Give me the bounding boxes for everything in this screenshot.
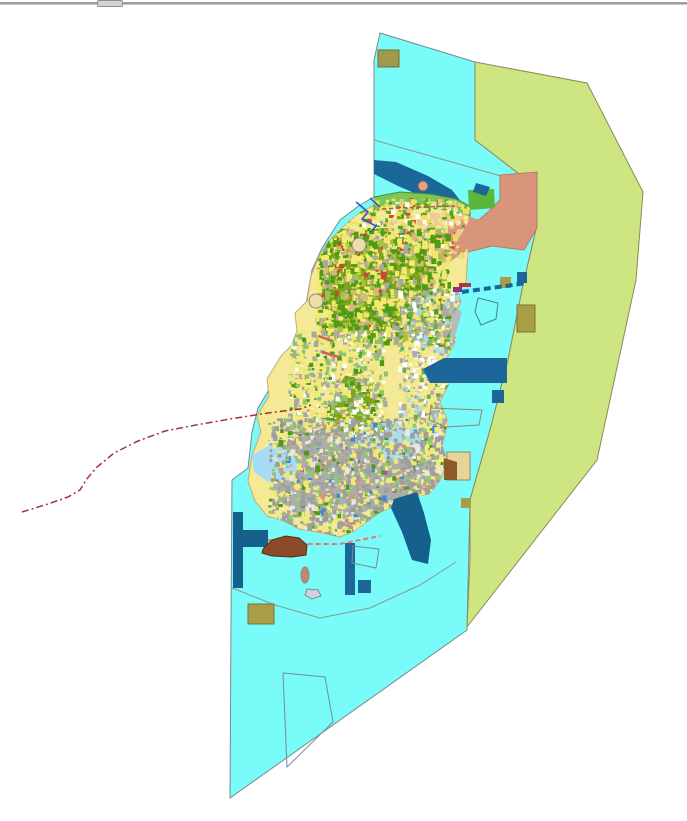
blue-square-east: [492, 390, 504, 403]
landmark-circle-north: [352, 238, 366, 252]
khaki-area-sw: [248, 604, 274, 624]
blue-bar-south: [345, 543, 355, 595]
blue-square-ne: [517, 272, 527, 283]
port-symbol-purple: [453, 287, 462, 292]
port-symbol-red: [459, 283, 471, 287]
blue-square-south: [358, 580, 371, 593]
map-page: [0, 0, 687, 821]
islet-salmon: [301, 567, 309, 583]
map-canvas: [0, 0, 687, 821]
landmark-circle-west: [309, 294, 323, 308]
khaki-area-east: [517, 305, 535, 332]
khaki-area-north: [378, 50, 399, 67]
khaki-square-se: [461, 498, 471, 508]
landmark-circle-ne: [418, 181, 428, 191]
map-viewport[interactable]: [0, 0, 687, 821]
